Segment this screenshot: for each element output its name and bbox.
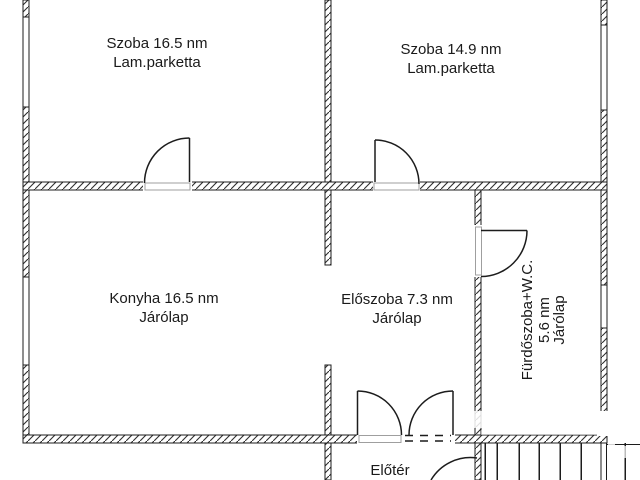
label-szoba1-line2: Lam.parketta [113, 54, 201, 71]
window-right-1 [601, 25, 607, 110]
label-eloter-line1: Előtér [370, 462, 409, 479]
door-eloter [431, 458, 477, 480]
watermark-patch [563, 444, 570, 459]
window-left-2 [23, 277, 29, 365]
window-left-1 [23, 17, 29, 107]
label-furdoszoba-line1: Fürdőszoba+W.C. [519, 260, 536, 380]
wall-konyha-eloszoba-lower [325, 365, 331, 443]
window-right-2 [601, 285, 607, 328]
jamb-szoba1-door [145, 183, 190, 190]
double-door-left-swing-arc [358, 391, 402, 435]
door-double-eloszoba [358, 391, 454, 441]
jamb-double-door [359, 436, 401, 443]
jamb-szoba2-door [374, 183, 419, 190]
watermark-patch [575, 446, 580, 459]
wall-bottom-horizontal [23, 435, 607, 443]
label-szoba2-line1: Szoba 14.9 nm [401, 41, 502, 58]
jamb-bathroom-door [476, 227, 482, 275]
label-eloszoba-line1: Előszoba 7.3 nm [341, 291, 453, 308]
wall-konyha-eloszoba-upper [325, 190, 331, 265]
wall-top-room-divider [325, 0, 331, 182]
watermark-patch [608, 444, 615, 459]
wall-eloter-left [325, 443, 331, 480]
door-szoba2-swing-arc [375, 140, 419, 184]
door-openings [143, 181, 482, 444]
door-szoba1 [145, 138, 190, 183]
label-szoba1-line1: Szoba 16.5 nm [107, 35, 208, 52]
watermark-patch [589, 445, 594, 458]
watermark-patch [597, 411, 609, 436]
label-konyha-line1: Konyha 16.5 nm [109, 290, 218, 307]
staircase [485, 443, 640, 480]
room-labels: Szoba 16.5 nm Lam.parketta Szoba 14.9 nm… [107, 35, 568, 479]
wall-middle-horizontal [23, 182, 607, 190]
label-konyha-line2: Járólap [139, 309, 188, 326]
label-eloszoba-line2: Járólap [372, 310, 421, 327]
double-door-right-swing-arc [409, 391, 453, 435]
door-szoba1-swing-arc [145, 138, 190, 183]
watermark-patch [620, 446, 629, 458]
watermark-patch [473, 411, 483, 428]
door-szoba2 [375, 140, 419, 184]
label-furdoszoba-line3: Járólap [551, 295, 568, 344]
label-szoba2-line2: Lam.parketta [407, 60, 495, 77]
walls [23, 0, 607, 480]
door-eloter-swing-arc [431, 458, 477, 480]
floor-plan-drawing: Szoba 16.5 nm Lam.parketta Szoba 14.9 nm… [0, 0, 640, 480]
floor-plan: Szoba 16.5 nm Lam.parketta Szoba 14.9 nm… [0, 0, 640, 480]
watermark-patch [481, 430, 597, 435]
